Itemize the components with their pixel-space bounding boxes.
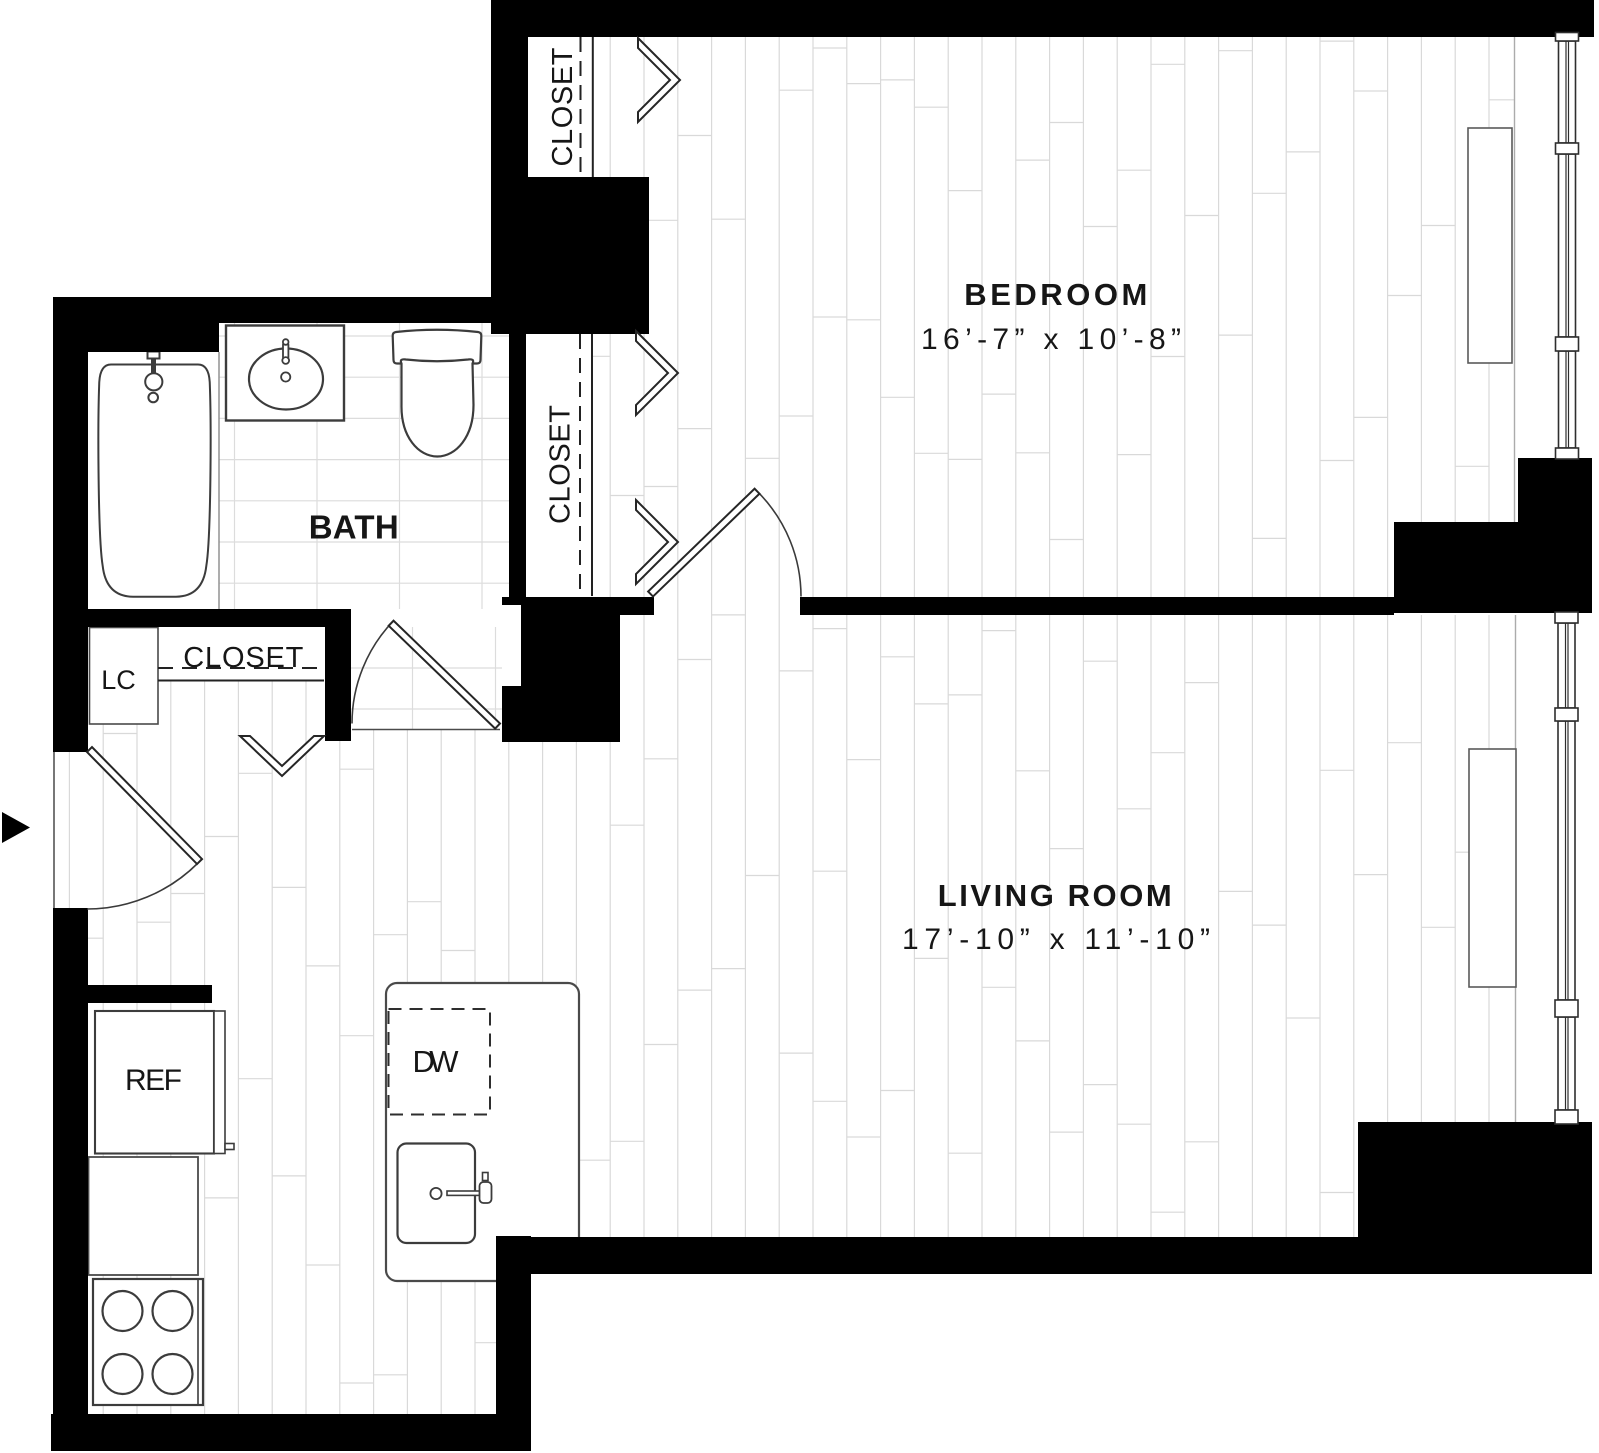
svg-text:DW: DW: [413, 1044, 460, 1079]
svg-text:REF: REF: [125, 1064, 182, 1097]
svg-text:CLOSET: CLOSET: [547, 47, 579, 166]
svg-text:17’-10” x 11’-10”: 17’-10” x 11’-10”: [902, 923, 1210, 956]
svg-text:LC: LC: [101, 665, 136, 695]
svg-text:CLOSET: CLOSET: [183, 642, 303, 674]
svg-text:BATH: BATH: [309, 509, 399, 546]
svg-text:CLOSET: CLOSET: [545, 405, 577, 524]
